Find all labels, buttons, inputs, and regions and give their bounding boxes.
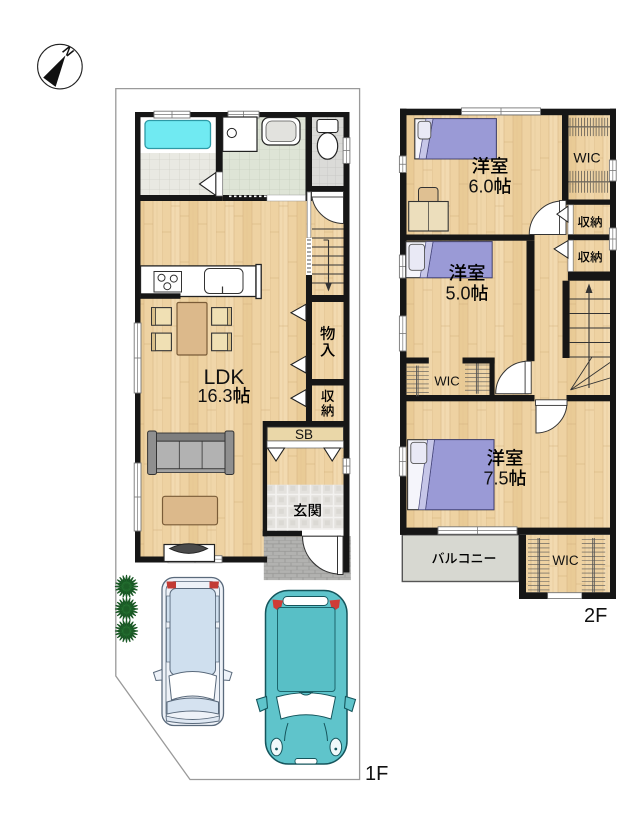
- svg-text:1F: 1F: [365, 763, 388, 785]
- svg-text:WIC: WIC: [573, 150, 600, 166]
- svg-text:7.5: 7.5: [484, 469, 509, 489]
- svg-text:6.0: 6.0: [469, 177, 494, 197]
- svg-text:WIC: WIC: [434, 374, 459, 389]
- svg-text:16.3: 16.3: [198, 386, 233, 406]
- svg-text:2F: 2F: [584, 605, 607, 627]
- svg-text:WIC: WIC: [552, 553, 578, 568]
- svg-text:SB: SB: [295, 427, 313, 442]
- svg-text:5.0: 5.0: [446, 284, 471, 304]
